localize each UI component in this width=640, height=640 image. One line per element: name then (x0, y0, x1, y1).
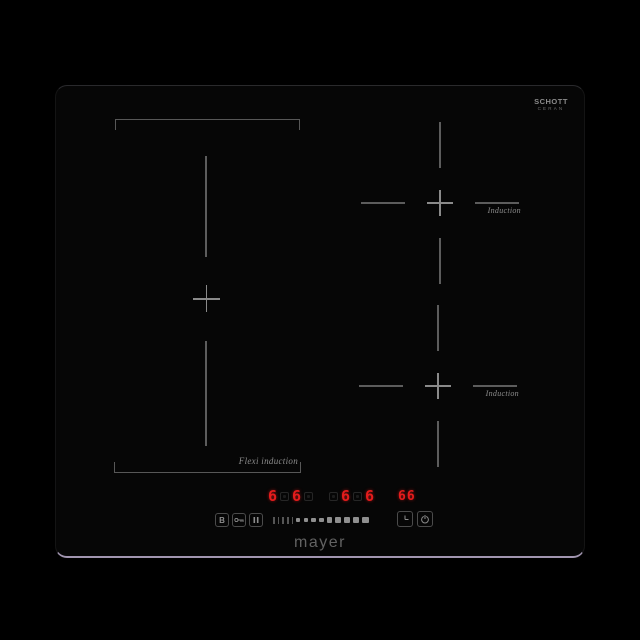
slider-step[interactable] (344, 517, 350, 523)
timer-indicator-icon (280, 492, 289, 501)
flexi-zone-top-bracket (115, 119, 300, 130)
mayer-brand-logo: mayer (56, 534, 584, 552)
timer-indicator-icon (329, 492, 338, 501)
induction-hob-glass: SCHOTT CERAN Flexi induction Induction I… (55, 85, 585, 558)
key-lock-icon (234, 516, 245, 524)
power-button[interactable] (417, 511, 433, 527)
slider-step[interactable] (311, 518, 316, 523)
boost-button-label: B (219, 516, 225, 525)
slider-tick[interactable] (282, 517, 284, 524)
lower-zone-arm-top (437, 305, 439, 351)
slider-step[interactable] (353, 517, 359, 523)
power-slider[interactable] (273, 515, 369, 525)
upper-zone-arm-right (475, 202, 519, 204)
timer-display: 66 (398, 489, 416, 504)
led-display-left-group: 6 6 (268, 488, 313, 504)
child-lock-button[interactable] (232, 513, 246, 527)
upper-zone-cross-vertical (439, 190, 441, 216)
lower-zone-arm-left (359, 385, 403, 387)
upper-zone-arm-bottom (439, 238, 441, 284)
timer-button[interactable] (397, 511, 413, 527)
slider-tick[interactable] (292, 517, 294, 524)
power-icon (420, 514, 430, 524)
lower-zone-arm-right (473, 385, 517, 387)
slider-step[interactable] (362, 517, 368, 523)
slider-step[interactable] (327, 517, 332, 522)
upper-zone-arm-top (439, 122, 441, 168)
pause-icon (252, 516, 260, 524)
timer-clock-icon (400, 514, 410, 524)
timer-indicator-icon (304, 492, 313, 501)
slider-step[interactable] (296, 518, 300, 522)
pause-button[interactable] (249, 513, 263, 527)
slider-step[interactable] (304, 518, 308, 522)
led-display-right-group: 6 6 (329, 488, 374, 504)
lower-zone-cross-vertical (437, 373, 439, 399)
zone-level-display: 6 (292, 488, 301, 504)
schott-logo-line1: SCHOTT (528, 98, 574, 106)
slider-tick[interactable] (287, 517, 289, 524)
slider-tick[interactable] (278, 517, 280, 524)
flexi-zone-label: Flexi induction (190, 456, 298, 466)
lower-zone-arm-bottom (437, 421, 439, 467)
schott-ceran-logo: SCHOTT CERAN (528, 98, 574, 112)
upper-zone-arm-left (361, 202, 405, 204)
flexi-zone-cross-vertical (206, 285, 208, 312)
zone-level-display: 6 (365, 488, 374, 504)
slider-tick[interactable] (273, 517, 275, 524)
zone-level-display: 6 (268, 488, 277, 504)
slider-step[interactable] (335, 517, 341, 523)
timer-indicator-icon (353, 492, 362, 501)
flexi-zone-center-line-lower (205, 341, 207, 446)
zone-level-display: 6 (341, 488, 350, 504)
boost-button[interactable]: B (215, 513, 229, 527)
lower-zone-label: Induction (461, 389, 519, 398)
schott-logo-line2: CERAN (528, 106, 574, 112)
slider-step[interactable] (319, 518, 324, 523)
flexi-zone-center-line-upper (205, 156, 207, 257)
upper-zone-label: Induction (463, 206, 521, 215)
